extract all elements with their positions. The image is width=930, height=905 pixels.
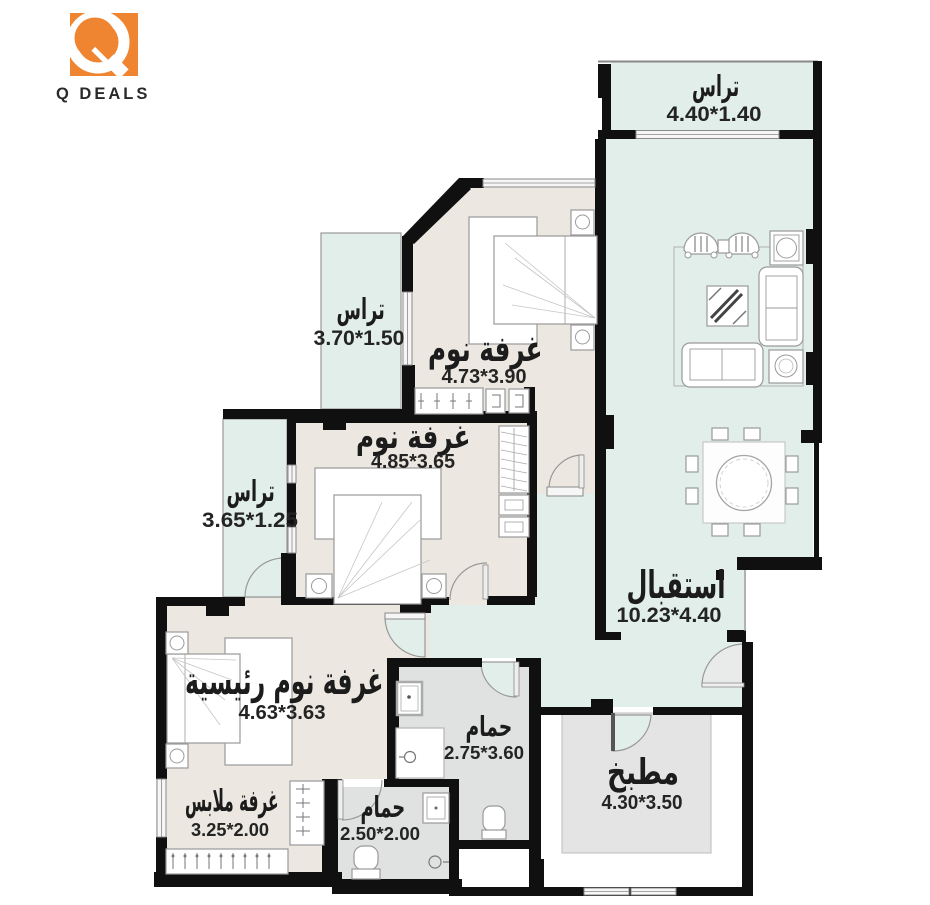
svg-text:2.75*3.60: 2.75*3.60 <box>444 743 524 763</box>
svg-text:4.30*3.50: 4.30*3.50 <box>602 792 683 814</box>
svg-text:4.73*3.90: 4.73*3.90 <box>442 366 527 388</box>
svg-text:10.23*4.40: 10.23*4.40 <box>617 604 722 627</box>
svg-text:2.50*2.00: 2.50*2.00 <box>340 824 420 844</box>
svg-text:Q DEALS: Q DEALS <box>56 85 150 103</box>
svg-text:3.65*1.25: 3.65*1.25 <box>202 509 298 532</box>
svg-text:3.25*2.00: 3.25*2.00 <box>191 820 269 840</box>
svg-text:4.63*3.63: 4.63*3.63 <box>239 702 326 724</box>
svg-text:3.70*1.50: 3.70*1.50 <box>314 327 405 350</box>
svg-text:4.40*1.40: 4.40*1.40 <box>667 103 762 126</box>
svg-text:4.85*3.65: 4.85*3.65 <box>371 451 455 473</box>
